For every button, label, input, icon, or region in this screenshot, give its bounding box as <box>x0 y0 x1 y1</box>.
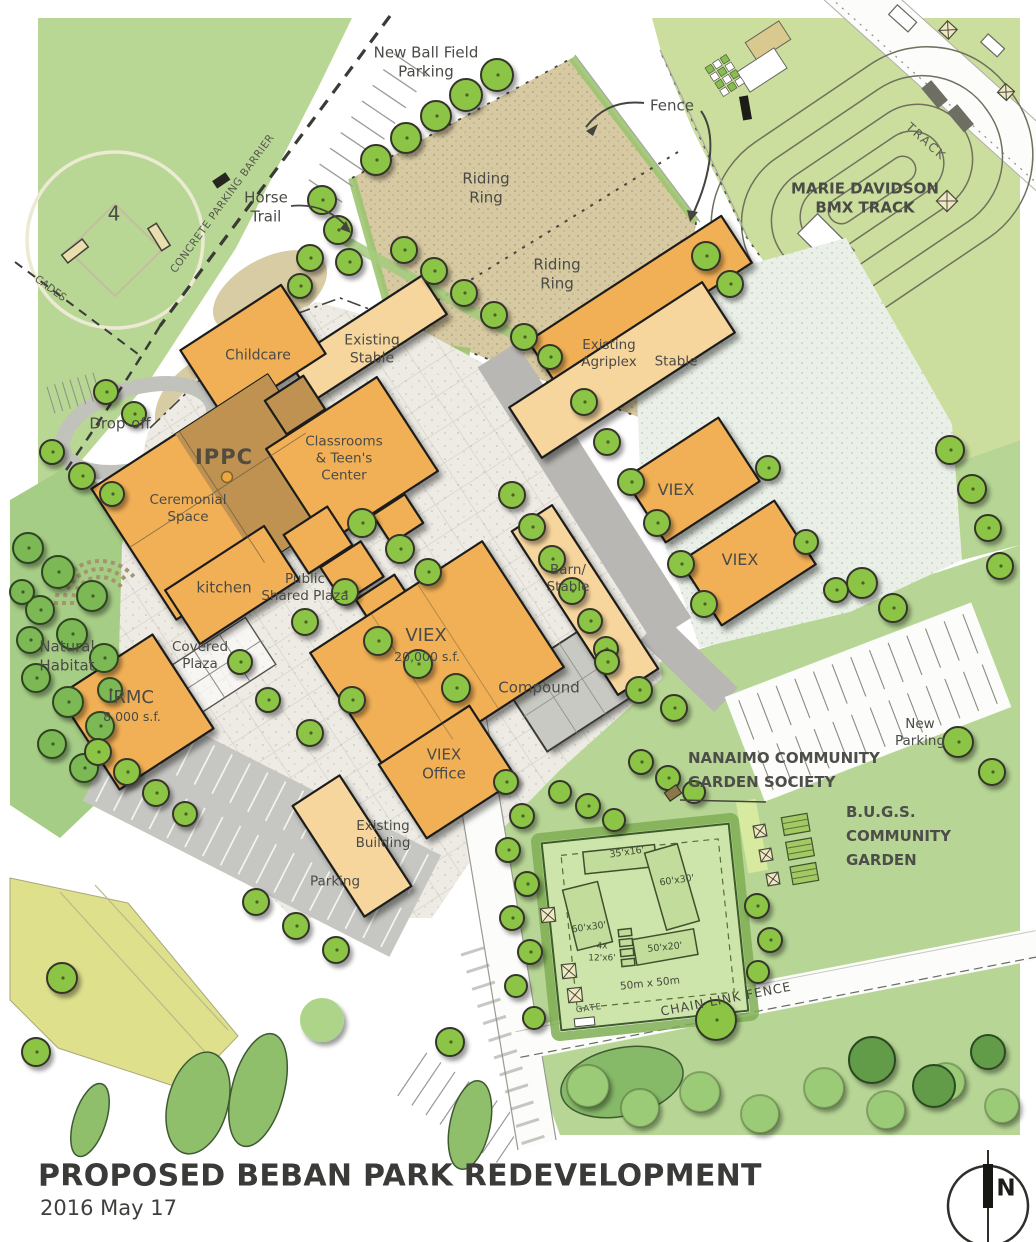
tree-icon <box>621 1089 659 1127</box>
tree-icon <box>567 1065 609 1107</box>
tree-center-dot <box>35 1050 38 1053</box>
x-box-marker <box>759 848 773 862</box>
tree-icon <box>913 1065 955 1107</box>
parking-stall-line <box>330 148 363 170</box>
tree-center-dot <box>27 546 30 549</box>
tree-center-dot <box>551 557 554 560</box>
tree-center-dot <box>309 256 312 259</box>
tree-center-dot <box>83 766 86 769</box>
tree-center-dot <box>51 742 54 745</box>
tree-center-dot <box>57 570 60 573</box>
tree-center-dot <box>255 900 258 903</box>
tree-center-dot <box>399 547 402 550</box>
tree-center-dot <box>375 158 378 161</box>
tree-icon <box>603 809 625 831</box>
tree-center-dot <box>61 976 64 979</box>
tree-center-dot <box>971 487 974 490</box>
tree-center-dot <box>680 562 683 565</box>
tree-center-dot <box>405 136 408 139</box>
tree-center-dot <box>267 698 270 701</box>
tree-center-dot <box>239 660 242 663</box>
parking-stall-line <box>362 101 395 123</box>
tree-icon <box>971 1035 1005 1069</box>
parking-stall-line <box>383 70 416 92</box>
tree-center-dot <box>417 662 420 665</box>
x-box-marker <box>540 907 555 922</box>
tree-center-dot <box>103 656 106 659</box>
tree-center-dot <box>29 638 32 641</box>
tree-center-dot <box>463 291 466 294</box>
tree-center-dot <box>571 589 574 592</box>
tree-center-dot <box>433 269 436 272</box>
tree-icon <box>523 1007 545 1029</box>
tree-center-dot <box>97 750 100 753</box>
tree-center-dot <box>109 688 112 691</box>
tree-center-dot <box>427 570 430 573</box>
tree-center-dot <box>435 114 438 117</box>
tree-center-dot <box>987 526 990 529</box>
tree-center-dot <box>531 525 534 528</box>
tree-icon <box>505 975 527 997</box>
tree-center-dot <box>304 620 307 623</box>
tree-center-dot <box>529 950 532 953</box>
tree-center-dot <box>344 590 347 593</box>
tree-icon <box>747 961 769 983</box>
tree-icon <box>741 1095 779 1133</box>
tree-center-dot <box>656 521 659 524</box>
tree-center-dot <box>606 440 609 443</box>
tree-icon <box>804 1068 844 1108</box>
tree-center-dot <box>511 916 514 919</box>
tree-center-dot <box>507 848 510 851</box>
tree-center-dot <box>455 686 458 689</box>
tree-center-dot <box>299 284 302 287</box>
tree-center-dot <box>155 791 158 794</box>
tree-center-dot <box>351 698 354 701</box>
tree-center-dot <box>521 814 524 817</box>
tree-center-dot <box>361 521 364 524</box>
x-box-marker <box>567 987 582 1002</box>
tree-center-dot <box>703 602 706 605</box>
tree-center-dot <box>511 493 514 496</box>
tree-center-dot <box>892 606 895 609</box>
tree-center-dot <box>589 619 592 622</box>
tree-center-dot <box>465 93 468 96</box>
tree-center-dot <box>705 254 708 257</box>
tree-icon <box>849 1037 895 1083</box>
tree-icon <box>985 1089 1019 1123</box>
x-box-marker <box>766 872 780 886</box>
tree-center-dot <box>767 466 770 469</box>
tree-center-dot <box>21 590 24 593</box>
tree-center-dot <box>496 73 499 76</box>
parking-stall-line <box>351 117 384 139</box>
tree-center-dot <box>111 492 114 495</box>
tree-center-dot <box>493 313 496 316</box>
tree-center-dot <box>630 480 633 483</box>
tree-center-dot <box>715 1018 718 1021</box>
tree-center-dot <box>91 594 94 597</box>
tree-center-dot <box>526 882 529 885</box>
tree-center-dot <box>769 938 772 941</box>
tree-center-dot <box>999 564 1002 567</box>
tree-icon <box>680 1072 720 1112</box>
tree-icon <box>867 1091 905 1129</box>
tree-center-dot <box>67 700 70 703</box>
tree-center-dot <box>640 760 643 763</box>
tree-center-dot <box>449 1040 452 1043</box>
tree-center-dot <box>51 450 54 453</box>
parking-stall-line <box>320 164 353 186</box>
tree-center-dot <box>587 804 590 807</box>
tree-center-dot <box>991 770 994 773</box>
tree-center-dot <box>184 812 187 815</box>
tree-center-dot <box>805 540 808 543</box>
tree-center-dot <box>756 904 759 907</box>
tree-center-dot <box>295 924 298 927</box>
tree-center-dot <box>335 948 338 951</box>
tree-center-dot <box>949 448 952 451</box>
x-box-marker <box>561 963 576 978</box>
x-box-marker <box>753 824 767 838</box>
tree-center-dot <box>523 335 526 338</box>
tree-icon <box>549 781 571 803</box>
tree-center-dot <box>583 400 586 403</box>
site-plan-drawing <box>0 0 1036 1242</box>
tree-center-dot <box>403 248 406 251</box>
tree-center-dot <box>99 724 102 727</box>
tree-center-dot <box>105 390 108 393</box>
tree-center-dot <box>35 676 38 679</box>
tree-center-dot <box>861 581 864 584</box>
tree-center-dot <box>377 639 380 642</box>
tree-center-dot <box>71 632 74 635</box>
tree-center-dot <box>309 731 312 734</box>
tree-center-dot <box>673 706 676 709</box>
tree-center-dot <box>835 588 838 591</box>
tree-center-dot <box>549 355 552 358</box>
parking-stall-line <box>373 85 406 107</box>
site-plan: New Ball Field Parking Fence TRACK MARIE… <box>0 0 1036 1242</box>
tree-center-dot <box>606 660 609 663</box>
tree-center-dot <box>729 282 732 285</box>
tree-center-dot <box>321 198 324 201</box>
tree-center-dot <box>133 412 136 415</box>
ippc-dot <box>222 472 233 483</box>
garden-gate <box>574 1017 595 1027</box>
tree-center-dot <box>81 474 84 477</box>
tree-center-dot <box>126 770 129 773</box>
north-arrow <box>948 1150 1028 1242</box>
tree-center-dot <box>348 260 351 263</box>
tree-center-dot <box>638 688 641 691</box>
tree-center-dot <box>39 608 42 611</box>
tree-icon <box>300 998 344 1042</box>
parking-stall-line <box>394 54 427 76</box>
tree-center-dot <box>667 776 670 779</box>
tree-center-dot <box>505 780 508 783</box>
tree-center-dot <box>957 740 960 743</box>
